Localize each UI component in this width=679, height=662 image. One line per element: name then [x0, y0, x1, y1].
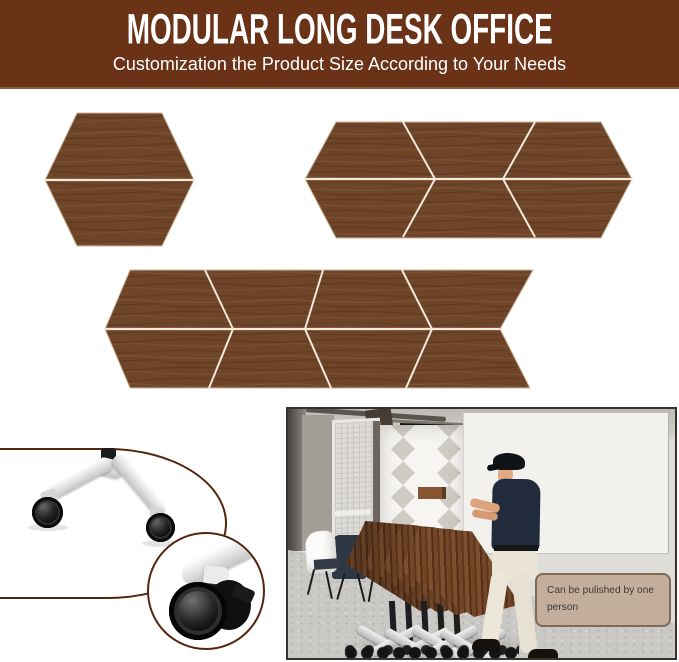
chair-white-seat	[314, 558, 341, 570]
title-banner: MODULAR LONG DESK OFFICE Customization t…	[0, 0, 679, 89]
person-belt	[494, 545, 538, 551]
callout-text: Can be pulished by one person	[547, 585, 654, 613]
callout-label: Can be pulished by one person	[535, 573, 671, 627]
wood-block-accent	[418, 487, 446, 499]
caster-wheel-right	[146, 513, 175, 542]
window-transom	[335, 509, 371, 516]
person-back-shoe	[528, 649, 558, 660]
chevron-strip-config	[105, 270, 533, 388]
hexagon-config	[45, 113, 194, 246]
person-torso	[491, 479, 540, 552]
long-hexagon-config	[305, 122, 632, 238]
office-photo: Can be pulished by one person	[286, 407, 677, 660]
product-image-canvas: { "banner": { "title": "MODULAR LONG DES…	[0, 0, 679, 662]
person-front-shoe	[472, 639, 500, 651]
caster-wheel-left	[32, 497, 63, 528]
caster-closeup-inset	[147, 532, 265, 650]
page-title: MODULAR LONG DESK OFFICE	[127, 8, 553, 50]
closeup-wheel-front	[169, 582, 227, 640]
page-subtitle: Customization the Product Size According…	[113, 54, 566, 75]
